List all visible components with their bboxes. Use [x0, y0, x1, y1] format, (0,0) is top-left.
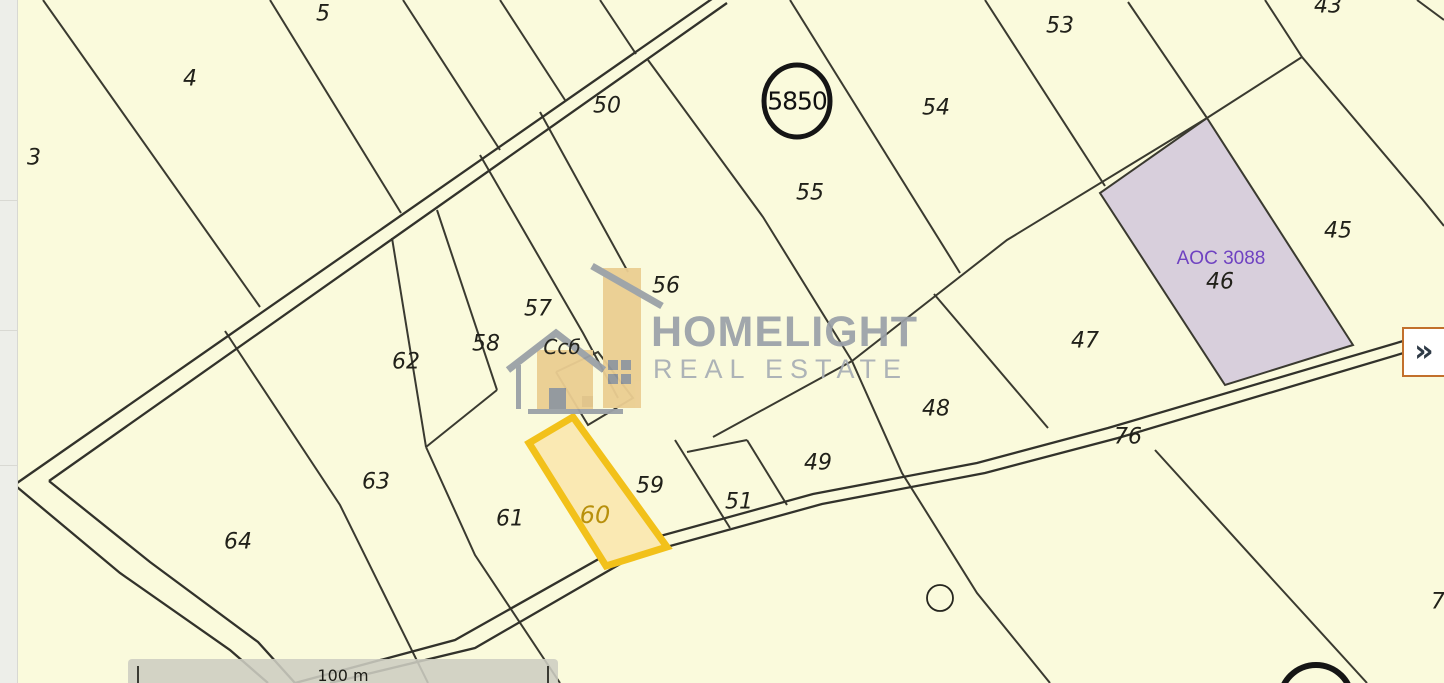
zone-code-label: AOC 3088 — [1177, 248, 1266, 270]
watermark-title: HOMELIGHT — [651, 308, 918, 357]
scale-bar: 100 m — [128, 659, 558, 683]
expand-panel-button[interactable]: » — [1402, 327, 1444, 377]
left-edge-panel-strip — [0, 0, 18, 683]
scale-bar-text: 100 m — [128, 666, 558, 683]
watermark-subtitle: REAL ESTATE — [653, 354, 908, 385]
site-label: Ссб — [543, 335, 580, 359]
survey-marker-label: 5850 — [767, 87, 827, 116]
strip-separator — [0, 465, 17, 466]
strip-separator — [0, 200, 17, 201]
strip-separator — [0, 330, 17, 331]
map-viewport[interactable]: HOMELIGHT REAL ESTATE 3 4 5 50 53 43 54 … — [0, 0, 1444, 683]
double-chevron-right-icon: » — [1414, 337, 1433, 367]
